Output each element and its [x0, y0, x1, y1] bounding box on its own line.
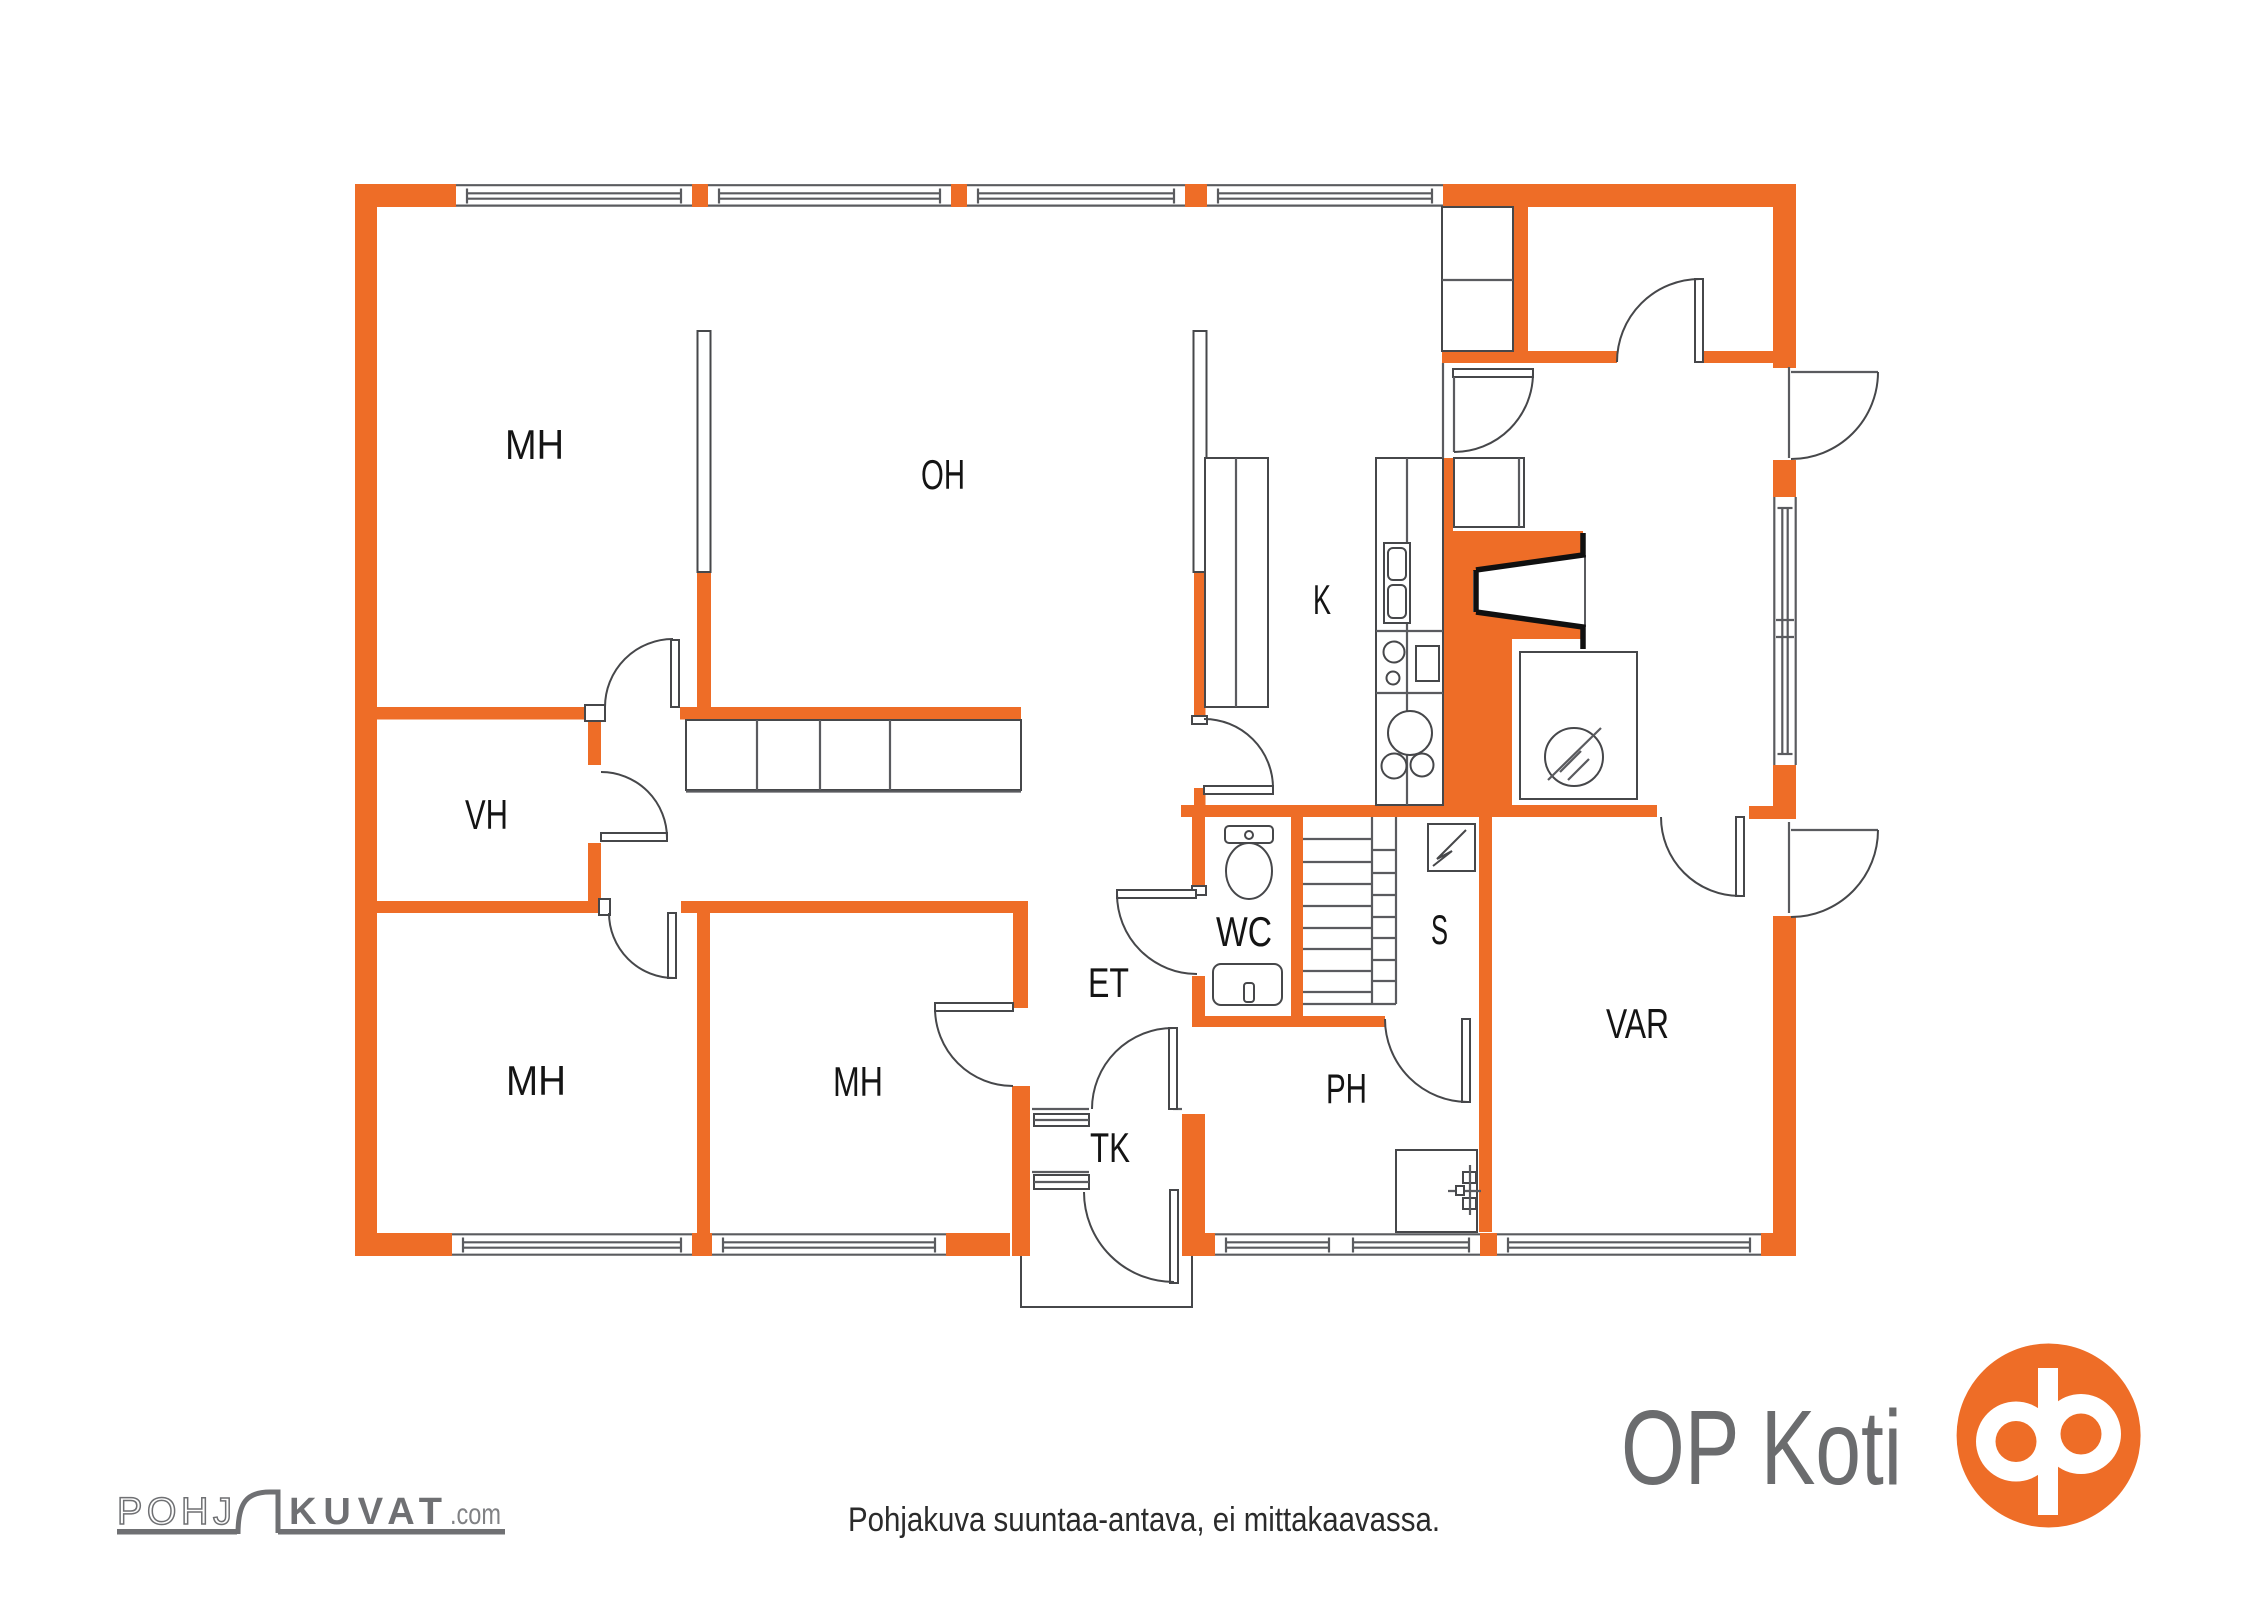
svg-text:MH: MH [506, 1057, 566, 1104]
svg-text:KUVAT: KUVAT [289, 1491, 442, 1533]
svg-text:TK: TK [1090, 1124, 1130, 1171]
svg-text:PH: PH [1326, 1065, 1367, 1112]
svg-text:OH: OH [921, 451, 965, 498]
svg-text:.com: .com [450, 1498, 501, 1531]
svg-text:OP Koti: OP Koti [1621, 1389, 1902, 1507]
svg-text:POHJ: POHJ [117, 1491, 232, 1533]
svg-text:Pohjakuva suuntaa-antava, ei m: Pohjakuva suuntaa-antava, ei mittakaavas… [848, 1501, 1440, 1539]
svg-text:VAR: VAR [1606, 1000, 1669, 1047]
svg-text:K: K [1313, 576, 1331, 623]
svg-text:ET: ET [1088, 959, 1129, 1006]
svg-text:MH: MH [833, 1058, 883, 1105]
svg-text:VH: VH [465, 791, 508, 838]
svg-text:MH: MH [505, 421, 564, 468]
svg-text:WC: WC [1216, 908, 1272, 955]
svg-text:S: S [1431, 906, 1448, 953]
